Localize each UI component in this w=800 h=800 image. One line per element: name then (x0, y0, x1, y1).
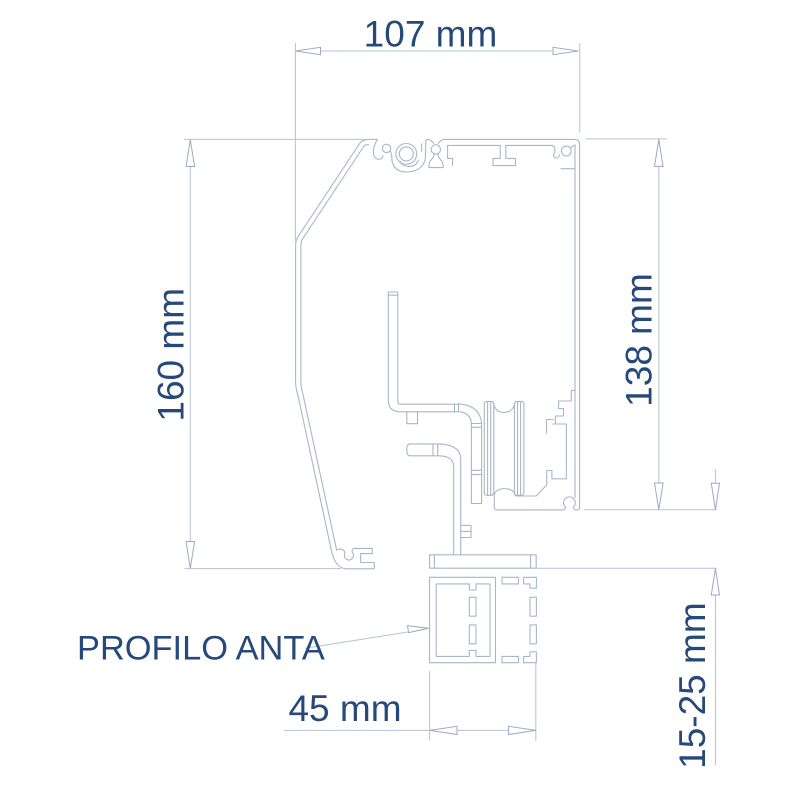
svg-text:138 mm: 138 mm (619, 273, 660, 407)
svg-text:45 mm: 45 mm (288, 688, 401, 729)
svg-text:PROFILO ANTA: PROFILO ANTA (77, 630, 325, 668)
svg-text:107 mm: 107 mm (364, 14, 498, 55)
svg-text:15-25 mm: 15-25 mm (672, 602, 713, 769)
svg-text:160 mm: 160 mm (151, 288, 192, 422)
